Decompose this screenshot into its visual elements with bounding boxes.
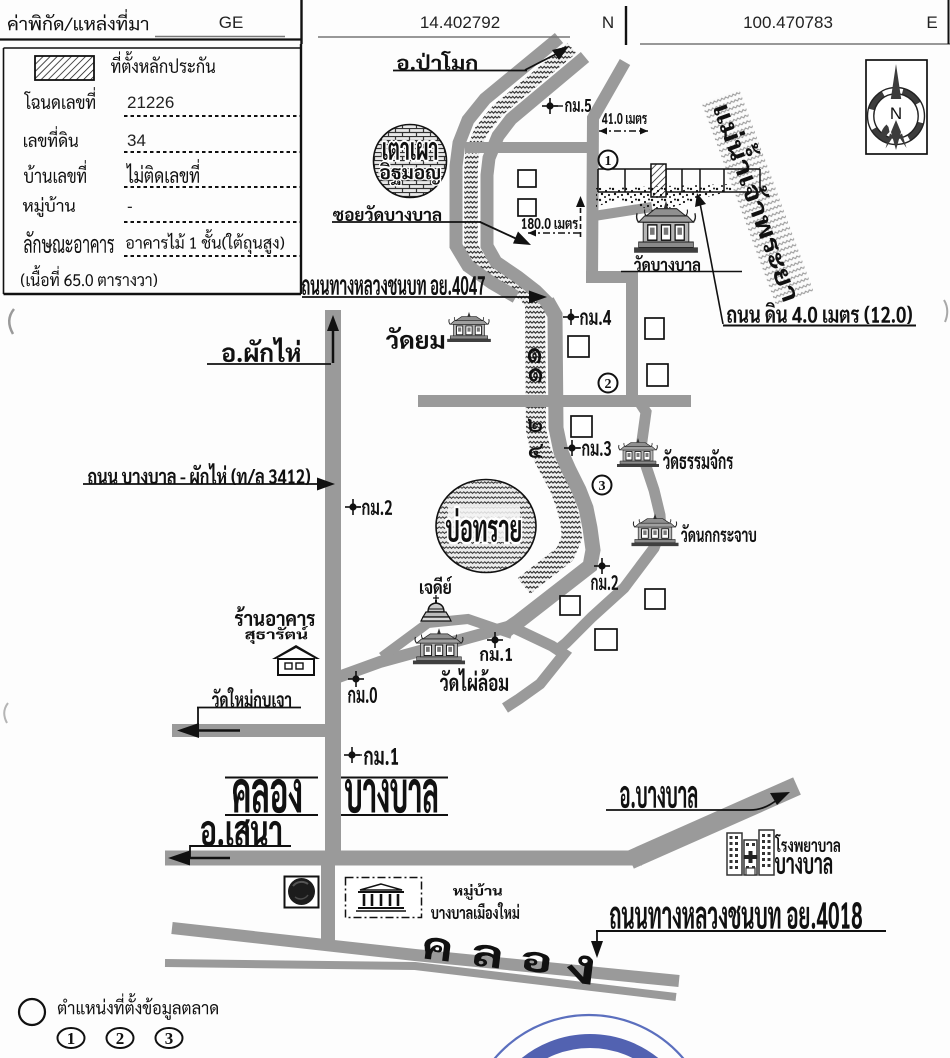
svg-text:3: 3	[165, 1029, 174, 1048]
svg-text:1: 1	[605, 154, 612, 169]
svg-text:1: 1	[67, 1029, 76, 1048]
svg-text:2: 2	[605, 377, 612, 392]
svg-text:E: E	[926, 13, 937, 32]
svg-text:21226: 21226	[127, 93, 174, 112]
svg-text:N: N	[602, 13, 614, 32]
svg-text:34: 34	[127, 131, 146, 150]
svg-text:3: 3	[599, 479, 606, 494]
svg-text:14.402792: 14.402792	[420, 13, 500, 32]
svg-text:GE: GE	[219, 13, 244, 32]
svg-text:-: -	[127, 197, 133, 216]
svg-text:100.470783: 100.470783	[743, 13, 833, 32]
svg-text:2: 2	[116, 1029, 125, 1048]
